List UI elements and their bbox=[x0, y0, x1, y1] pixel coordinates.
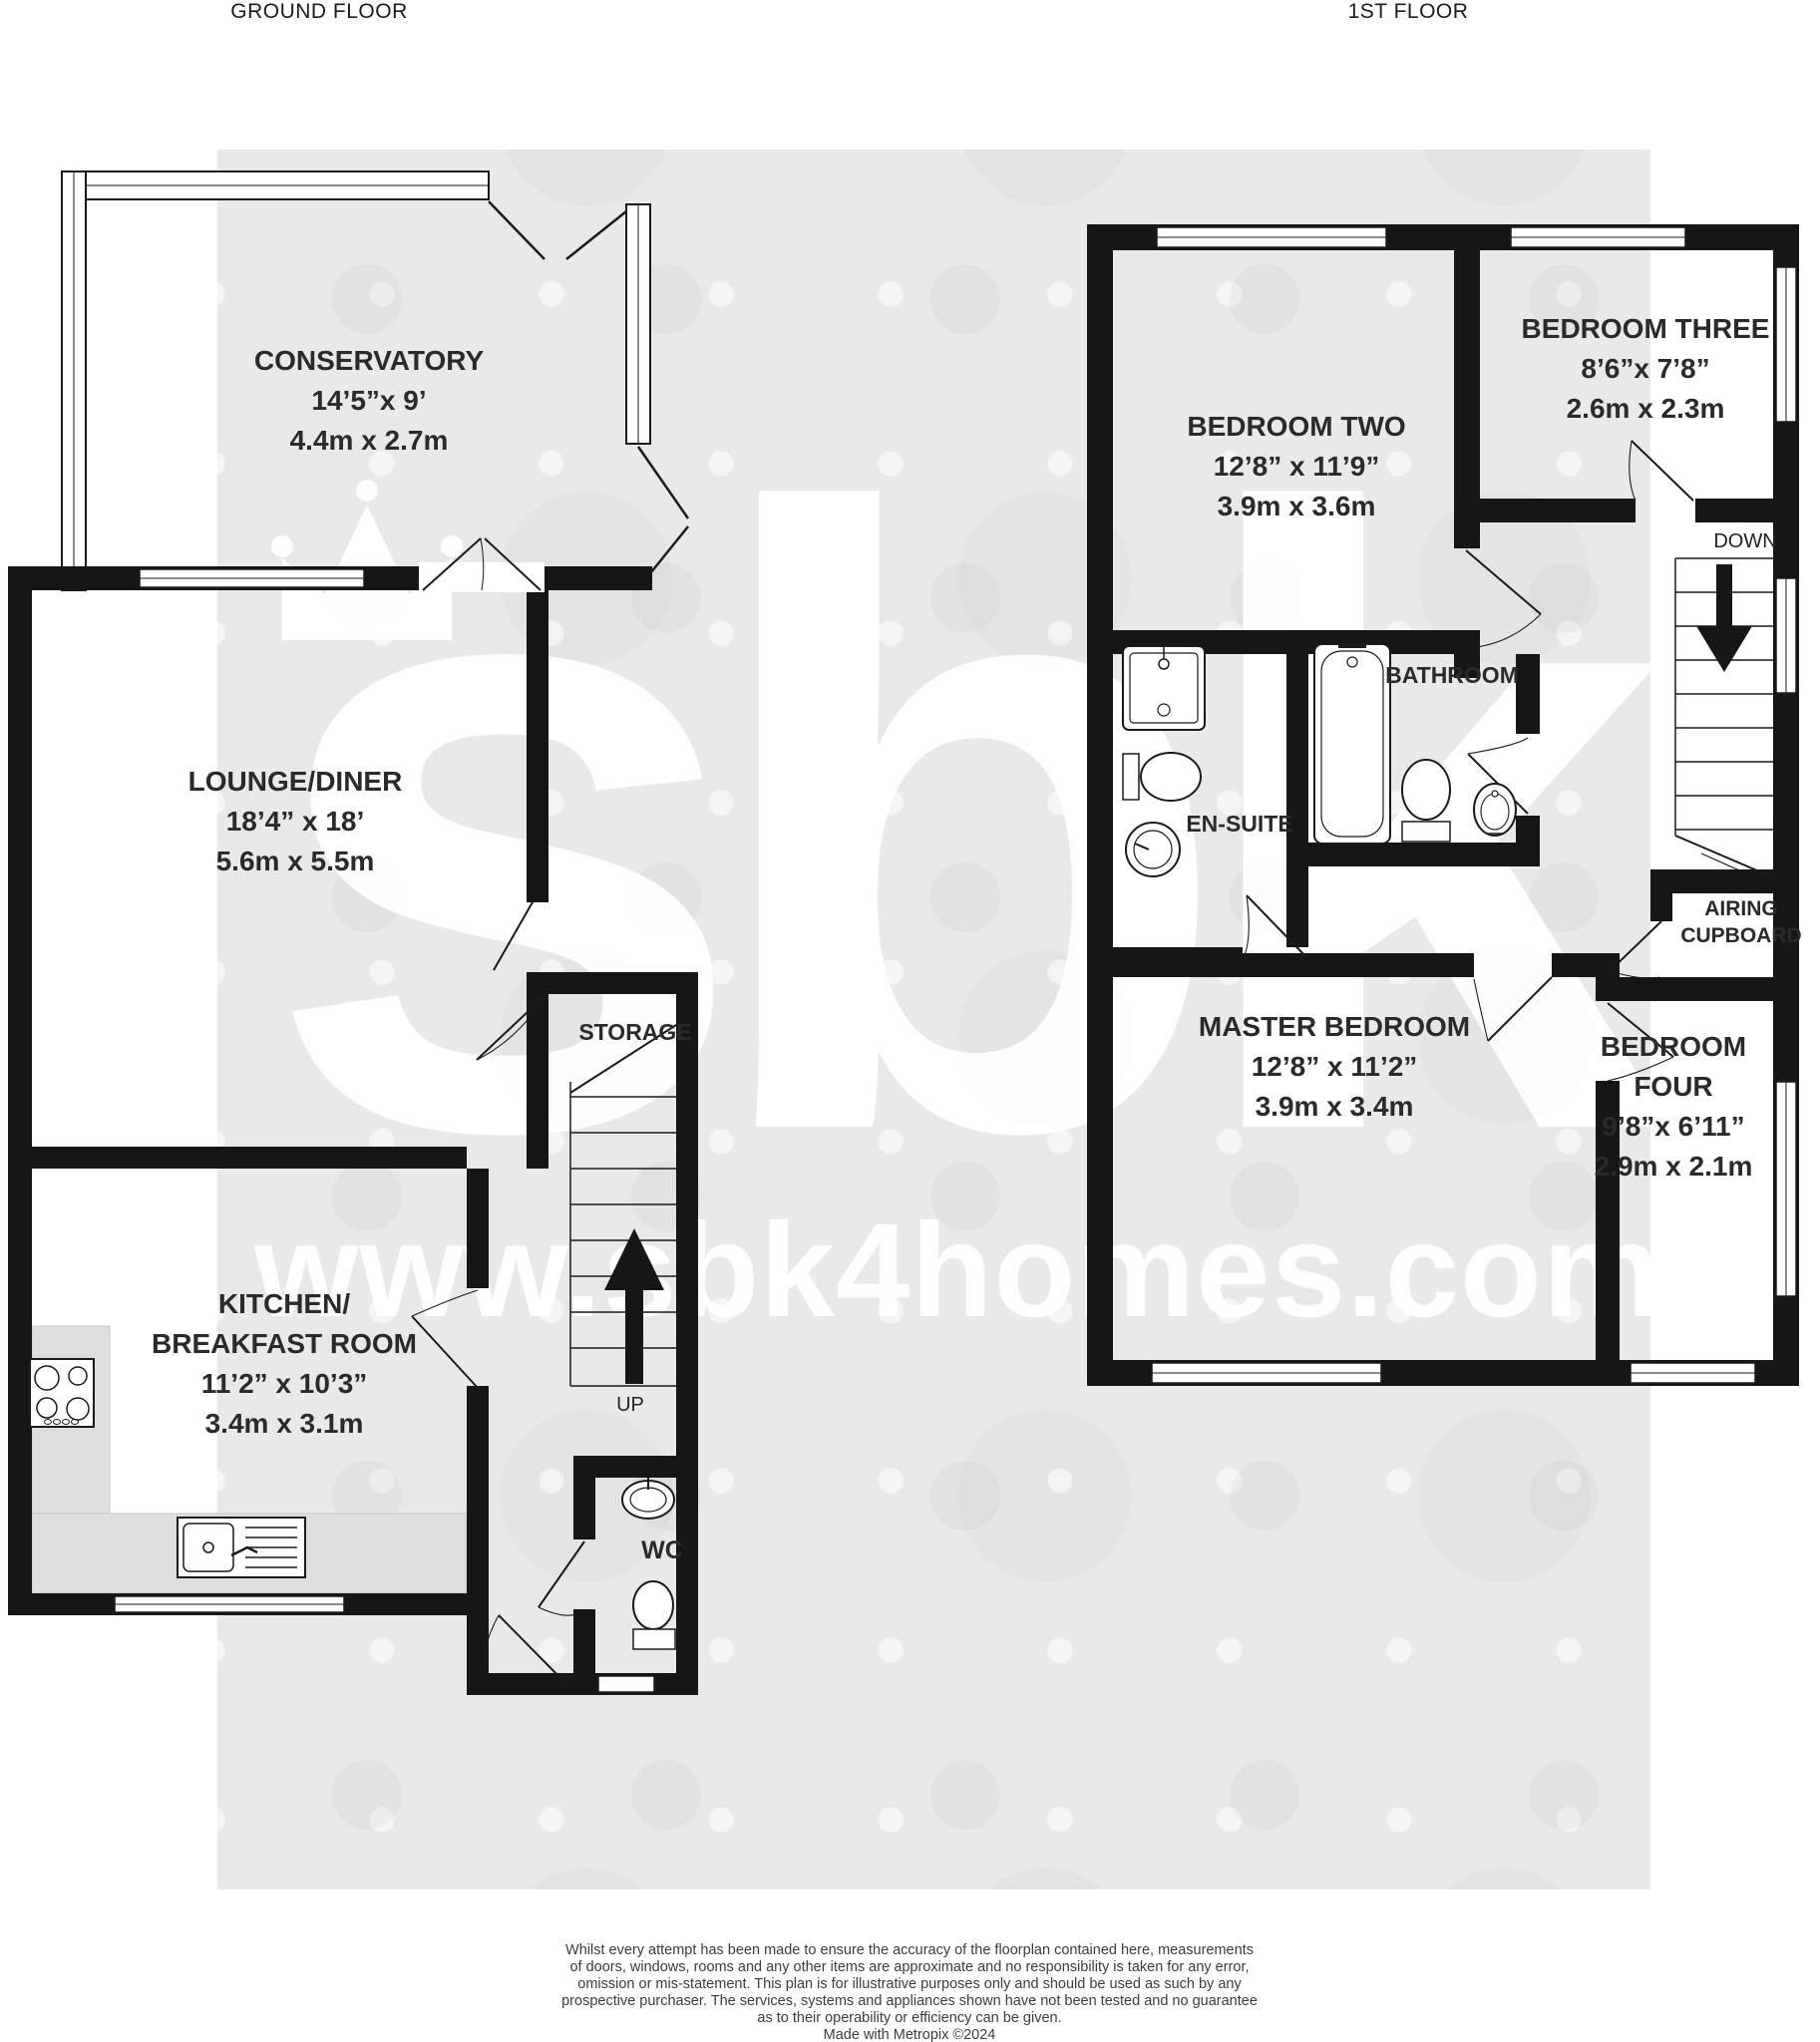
stairs-down-label: DOWN bbox=[1713, 530, 1776, 552]
master-bedroom-label: MASTER BEDROOM 12’8” x 11’2” 3.9m x 3.4m bbox=[1199, 1007, 1470, 1127]
room-metric: 3.9m x 3.6m bbox=[1187, 487, 1405, 526]
bathroom-toilet-icon bbox=[1402, 760, 1450, 842]
room-name: AIRING bbox=[1680, 895, 1801, 922]
room-metric: 2.6m x 2.3m bbox=[1522, 389, 1770, 429]
room-imperial: 12’8” x 11’2” bbox=[1199, 1047, 1470, 1087]
kitchen-sink-icon bbox=[178, 1518, 305, 1577]
ensuite-label: EN-SUITE bbox=[1186, 811, 1292, 837]
room-name: KITCHEN/ bbox=[152, 1284, 417, 1324]
stairs-up bbox=[570, 1025, 676, 1386]
bathroom-label: BATHROOM bbox=[1385, 662, 1519, 688]
disclaimer-line: of doors, windows, rooms and any other i… bbox=[411, 1959, 1408, 1976]
ensuite-toilet-icon bbox=[1123, 753, 1201, 801]
bathtub-icon bbox=[1314, 644, 1390, 844]
disclaimer: Whilst every attempt has been made to en… bbox=[411, 1942, 1408, 2042]
room-metric: 3.9m x 3.4m bbox=[1199, 1087, 1470, 1127]
lounge-label: LOUNGE/DINER 18’4” x 18’ 5.6m x 5.5m bbox=[188, 762, 403, 881]
floorplan-page: sbk www.sbk4homes.com bbox=[0, 0, 1820, 2042]
storage-label: STORAGE bbox=[578, 1019, 691, 1045]
room-metric: 5.6m x 5.5m bbox=[188, 842, 403, 881]
room-imperial: 12’8” x 11’9” bbox=[1187, 447, 1405, 487]
bedroom-three-label: BEDROOM THREE 8’6”x 7’8” 2.6m x 2.3m bbox=[1522, 309, 1770, 429]
floorplan-drawing bbox=[0, 0, 1820, 2042]
room-metric: 2.9m x 2.1m bbox=[1595, 1147, 1753, 1187]
room-name: BREAKFAST ROOM bbox=[152, 1324, 417, 1364]
ground-floor-title: GROUND FLOOR bbox=[230, 0, 408, 24]
disclaimer-line: prospective purchaser. The services, sys… bbox=[411, 1993, 1408, 2010]
first-floor-title: 1ST FLOOR bbox=[1348, 0, 1469, 24]
room-name: BEDROOM bbox=[1595, 1027, 1753, 1067]
room-name: MASTER BEDROOM bbox=[1199, 1007, 1470, 1047]
shower-icon bbox=[1123, 646, 1205, 730]
room-name: BEDROOM THREE bbox=[1522, 309, 1770, 349]
french-doors bbox=[419, 538, 545, 592]
wc-sink-icon bbox=[622, 1478, 674, 1519]
room-metric: 4.4m x 2.7m bbox=[254, 421, 484, 461]
room-metric: 3.4m x 3.1m bbox=[152, 1404, 417, 1444]
room-imperial: 11’2” x 10’3” bbox=[152, 1364, 417, 1404]
disclaimer-line: Whilst every attempt has been made to en… bbox=[411, 1942, 1408, 1959]
disclaimer-line: as to their operability or efficiency ca… bbox=[411, 2010, 1408, 2027]
room-imperial: 14’5”x 9’ bbox=[254, 381, 484, 421]
wc-toilet-icon bbox=[633, 1581, 675, 1649]
bathroom-sink-icon bbox=[1474, 784, 1516, 836]
airing-cupboard-label: AIRING CUPBOARD bbox=[1680, 895, 1801, 949]
hob-icon bbox=[30, 1359, 94, 1427]
room-imperial: 18’4” x 18’ bbox=[188, 802, 403, 842]
disclaimer-line: Made with Metropix ©2024 bbox=[411, 2027, 1408, 2042]
bedroom-two-label: BEDROOM TWO 12’8” x 11’9” 3.9m x 3.6m bbox=[1187, 407, 1405, 526]
room-name: BEDROOM TWO bbox=[1187, 407, 1405, 447]
room-name: FOUR bbox=[1595, 1067, 1753, 1107]
room-name: LOUNGE/DINER bbox=[188, 762, 403, 802]
room-imperial: 9’8”x 6’11” bbox=[1595, 1107, 1753, 1147]
disclaimer-line: omission or mis-statement. This plan is … bbox=[411, 1976, 1408, 1993]
conservatory-label: CONSERVATORY 14’5”x 9’ 4.4m x 2.7m bbox=[254, 341, 484, 461]
stairs-down bbox=[1675, 558, 1773, 877]
room-name: CONSERVATORY bbox=[254, 341, 484, 381]
room-name: CUPBOARD bbox=[1680, 922, 1801, 949]
room-imperial: 8’6”x 7’8” bbox=[1522, 349, 1770, 389]
stairs-up-label: UP bbox=[616, 1394, 644, 1416]
wc-label: WC bbox=[641, 1537, 683, 1563]
bedroom-four-label: BEDROOM FOUR 9’8”x 6’11” 2.9m x 2.1m bbox=[1595, 1027, 1753, 1187]
kitchen-label: KITCHEN/ BREAKFAST ROOM 11’2” x 10’3” 3.… bbox=[152, 1284, 417, 1444]
ensuite-sink-icon bbox=[1126, 823, 1180, 876]
